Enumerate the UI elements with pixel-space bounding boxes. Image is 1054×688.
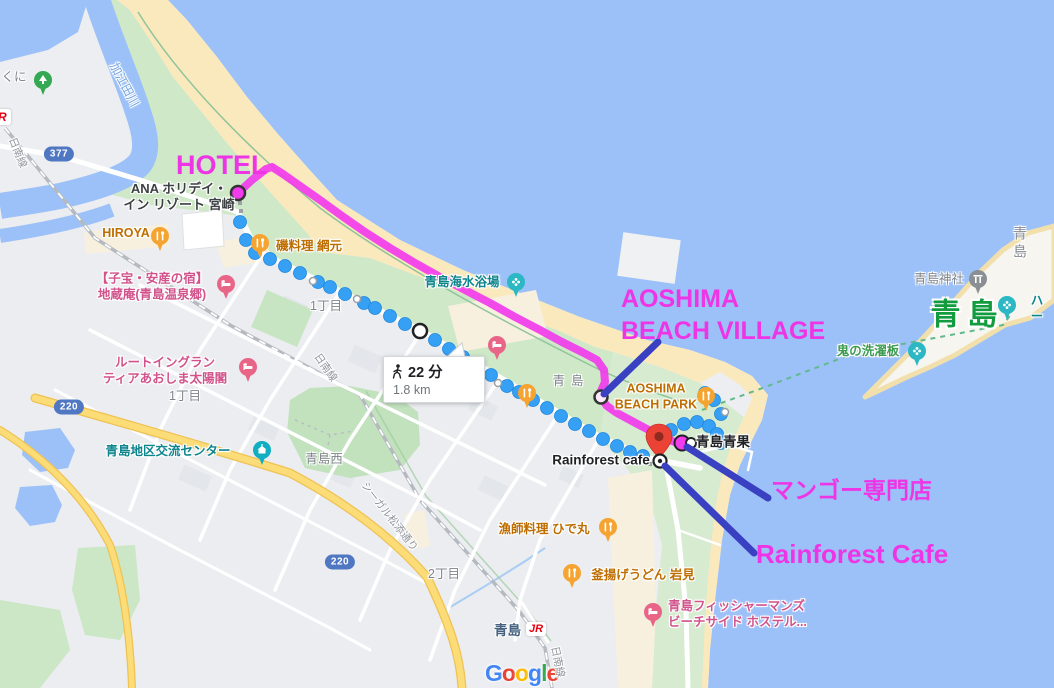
walking-route-dot — [399, 318, 412, 331]
map-label-aoshima-town: 青島 — [546, 374, 589, 390]
walking-route-dot — [294, 267, 307, 280]
route-connector-dot — [238, 201, 242, 205]
walking-route-mini-dot — [495, 380, 502, 387]
map-label-fishermans-hostel[interactable]: 青島フィッシャーマンズ ビーチサイド ホステル... — [668, 599, 807, 630]
walking-route-mini-dot — [310, 278, 317, 285]
map-label-ha-truncated[interactable]: ハー — [1029, 293, 1046, 324]
route-badge-377: 377 — [44, 147, 74, 162]
walking-route-dot — [279, 260, 292, 273]
map-label-kuni: くに — [1, 70, 26, 86]
route-connector-dot — [239, 209, 243, 213]
map-canvas[interactable]: 22 分 1.8 km 青島 JR R Google くに加江田川日南線ANA … — [0, 0, 1054, 688]
google-logo-letter: o — [515, 660, 528, 686]
walking-route-mini-dot — [354, 296, 361, 303]
walking-route-dot — [611, 440, 624, 453]
annotation-mango-shop: マンゴー専門店 — [771, 476, 932, 505]
walking-route-dot — [569, 418, 582, 431]
walk-distance: 1.8 km — [393, 383, 476, 397]
map-label-beach-park[interactable]: AOSHIMA BEACH PARK — [615, 381, 697, 412]
map-label-itchome-1: 1丁目 — [310, 299, 342, 315]
jr-logo: JR — [526, 622, 546, 636]
map-label-iso-amimoto[interactable]: 磯料理 網元 — [276, 239, 342, 255]
map-label-hidemaru[interactable]: 漁師料理 ひで丸 — [499, 522, 590, 538]
walking-route-dot — [583, 425, 596, 438]
annotation-rainforest-cafe: Rainforest Cafe — [756, 538, 948, 571]
walking-time-badge[interactable]: 22 分 1.8 km — [383, 356, 485, 403]
map-label-koryu-center[interactable]: 青島地区交流センター — [105, 444, 230, 460]
route-via-dot[interactable] — [413, 324, 427, 338]
walking-route-dot — [324, 281, 337, 294]
walking-route-dot — [691, 416, 704, 429]
station-aoshima[interactable]: 青島 JR — [494, 619, 546, 639]
walking-route-dot — [429, 334, 442, 347]
jr-logo-partial: R — [0, 109, 11, 125]
map-label-aoshima-nishi: 青島西 — [305, 452, 343, 468]
map-label-nichome: 2丁目 — [428, 567, 460, 583]
map-label-itchome-2: 1丁目 — [169, 389, 201, 405]
google-logo-letter: G — [485, 660, 502, 686]
map-label-hotel-ana[interactable]: ANA ホリデイ・ イン リゾート 宮崎 — [123, 181, 234, 214]
google-logo-letter: g — [528, 660, 541, 686]
map-label-rainforest-poi[interactable]: Rainforest cafe — [552, 453, 650, 470]
map-label-route-inn[interactable]: ルートイングラン ティアあおしま太陽閣 — [103, 355, 227, 386]
annotation-hotel: HOTEL — [176, 148, 268, 182]
walking-route-dot — [597, 433, 610, 446]
map-label-aoshima-seika[interactable]: 青島青果 — [696, 435, 750, 452]
station-name: 青島 — [494, 619, 521, 639]
walking-route-dot — [678, 418, 691, 431]
map-label-hiroya[interactable]: HIROYA — [102, 226, 149, 242]
map-label-jizoan[interactable]: 【子宝・安産の宿】 地蔵庵(青島温泉郷) — [96, 271, 209, 302]
walking-route-mini-dot — [722, 409, 729, 416]
walking-route-dot — [264, 253, 277, 266]
google-logo-letter: o — [502, 660, 515, 686]
walk-duration: 22 分 — [408, 361, 443, 382]
walking-route-dot — [234, 216, 247, 229]
map-label-oni-no-sentakuita[interactable]: 鬼の洗濯板 — [837, 344, 900, 360]
map-label-kaisuiyokujo[interactable]: 青島海水浴場 — [424, 275, 499, 291]
walking-route-dot — [541, 402, 554, 415]
route-badge-220: 220 — [54, 400, 84, 415]
annotation-aoshima-beach-village: AOSHIMA BEACH VILLAGE — [621, 284, 825, 347]
google-logo[interactable]: Google — [485, 660, 558, 687]
map-label-iwami[interactable]: 釜揚げうどん 岩見 — [591, 568, 694, 584]
walking-route-dot — [501, 380, 514, 393]
walking-person-icon — [392, 364, 403, 380]
walking-route-dot — [384, 310, 397, 323]
map-label-aoshima-jinja[interactable]: 青島神社 — [914, 272, 964, 288]
route-badge-220: 220 — [325, 555, 355, 570]
walking-route-dot — [555, 410, 568, 423]
map-label-aoshima-island-green: 青島 — [924, 296, 1005, 334]
map-label-aoshima-island-gray: 青島 — [1003, 226, 1037, 261]
walking-route-dot — [369, 302, 382, 315]
walking-route-dot — [240, 234, 253, 247]
